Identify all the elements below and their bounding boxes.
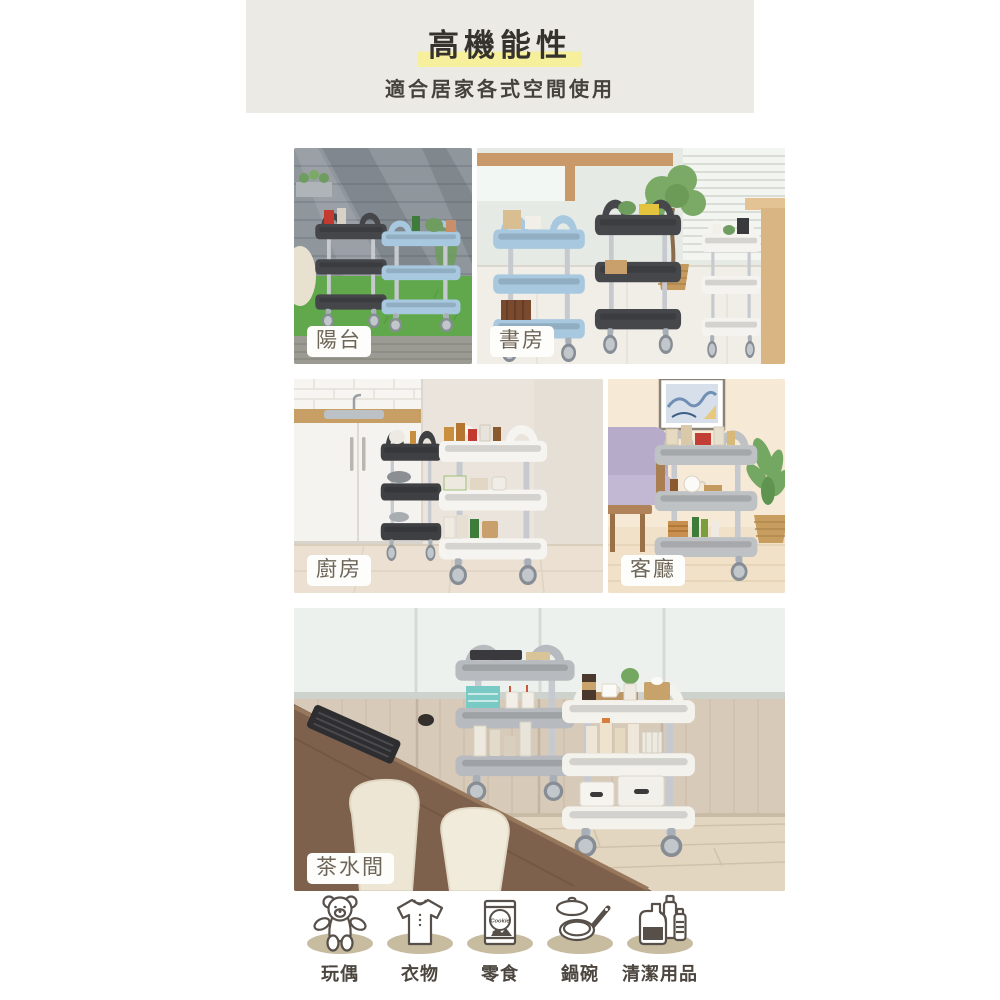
photo-label-balcony: 陽台 — [307, 326, 371, 357]
cookie-bag-text: Cookie — [490, 919, 510, 925]
usage-label-snacks: 零食 — [460, 960, 540, 986]
usage-label-cleaning-supplies: 清潔用品 — [620, 960, 700, 986]
usage-label-clothing: 衣物 — [380, 960, 460, 986]
photo-label-study: 書房 — [490, 326, 554, 357]
tshirt-icon — [380, 890, 460, 956]
header-banner: 高機能性 適合居家各式空間使用 — [246, 0, 754, 113]
product-info-page: 高機能性 適合居家各式空間使用 — [0, 0, 1000, 1000]
page-title: 高機能性 — [418, 28, 582, 67]
teddy-bear-icon — [300, 890, 380, 956]
photo-label-living-room: 客廳 — [621, 555, 685, 586]
photo-label-kitchen: 廚房 — [307, 555, 371, 586]
usage-label-plush-toy: 玩偶 — [300, 960, 380, 986]
pantry-scene-illustration — [294, 608, 785, 891]
photo-pantry: 茶水間 — [294, 608, 785, 891]
usage-icons-row: 玩偶 衣物 — [300, 890, 700, 986]
page-title-row: 高機能性 — [246, 0, 754, 65]
photo-kitchen: 廚房 — [294, 379, 603, 593]
usage-label-cookware: 鍋碗 — [540, 960, 620, 986]
usage-item-cleaning-supplies: 清潔用品 — [620, 890, 700, 986]
photo-study: 書房 — [477, 148, 785, 364]
snack-bag-icon: Cookie — [460, 890, 540, 956]
page-subtitle: 適合居家各式空間使用 — [246, 73, 754, 102]
photo-balcony: 陽台 — [294, 148, 472, 364]
usage-item-cookware: 鍋碗 — [540, 890, 620, 986]
pan-icon — [540, 890, 620, 956]
detergent-icon — [620, 890, 700, 956]
photo-label-pantry: 茶水間 — [307, 853, 394, 884]
usage-item-plush-toy: 玩偶 — [300, 890, 380, 986]
usage-item-snacks: Cookie 零食 — [460, 890, 540, 986]
usage-item-clothing: 衣物 — [380, 890, 460, 986]
photo-living-room: 客廳 — [608, 379, 785, 593]
